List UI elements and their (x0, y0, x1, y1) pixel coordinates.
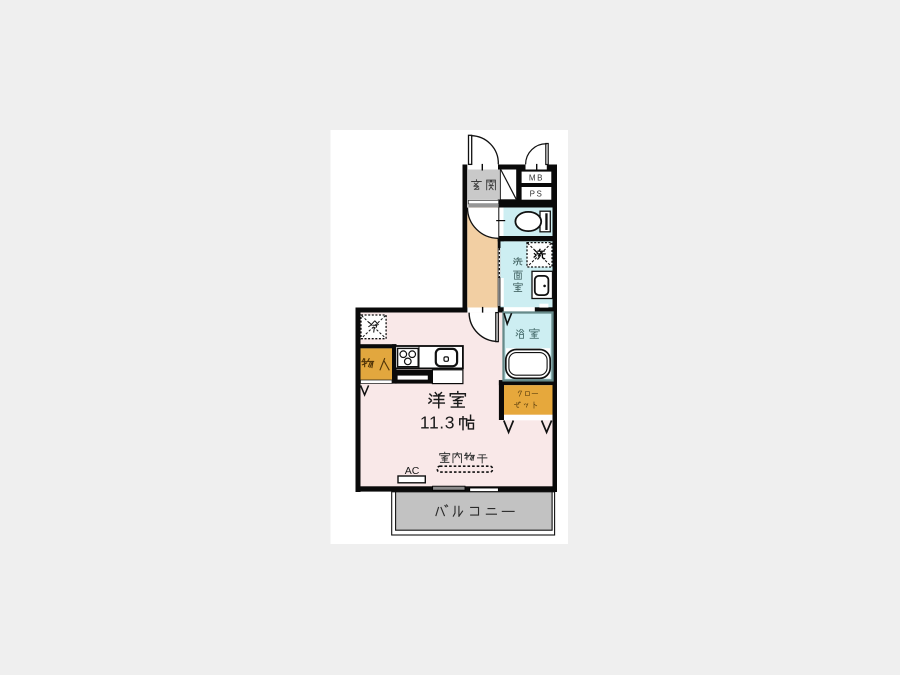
svg-text:PS: PS (530, 189, 544, 198)
svg-text:MB: MB (529, 173, 544, 182)
svg-text:11.3: 11.3 (420, 413, 455, 433)
